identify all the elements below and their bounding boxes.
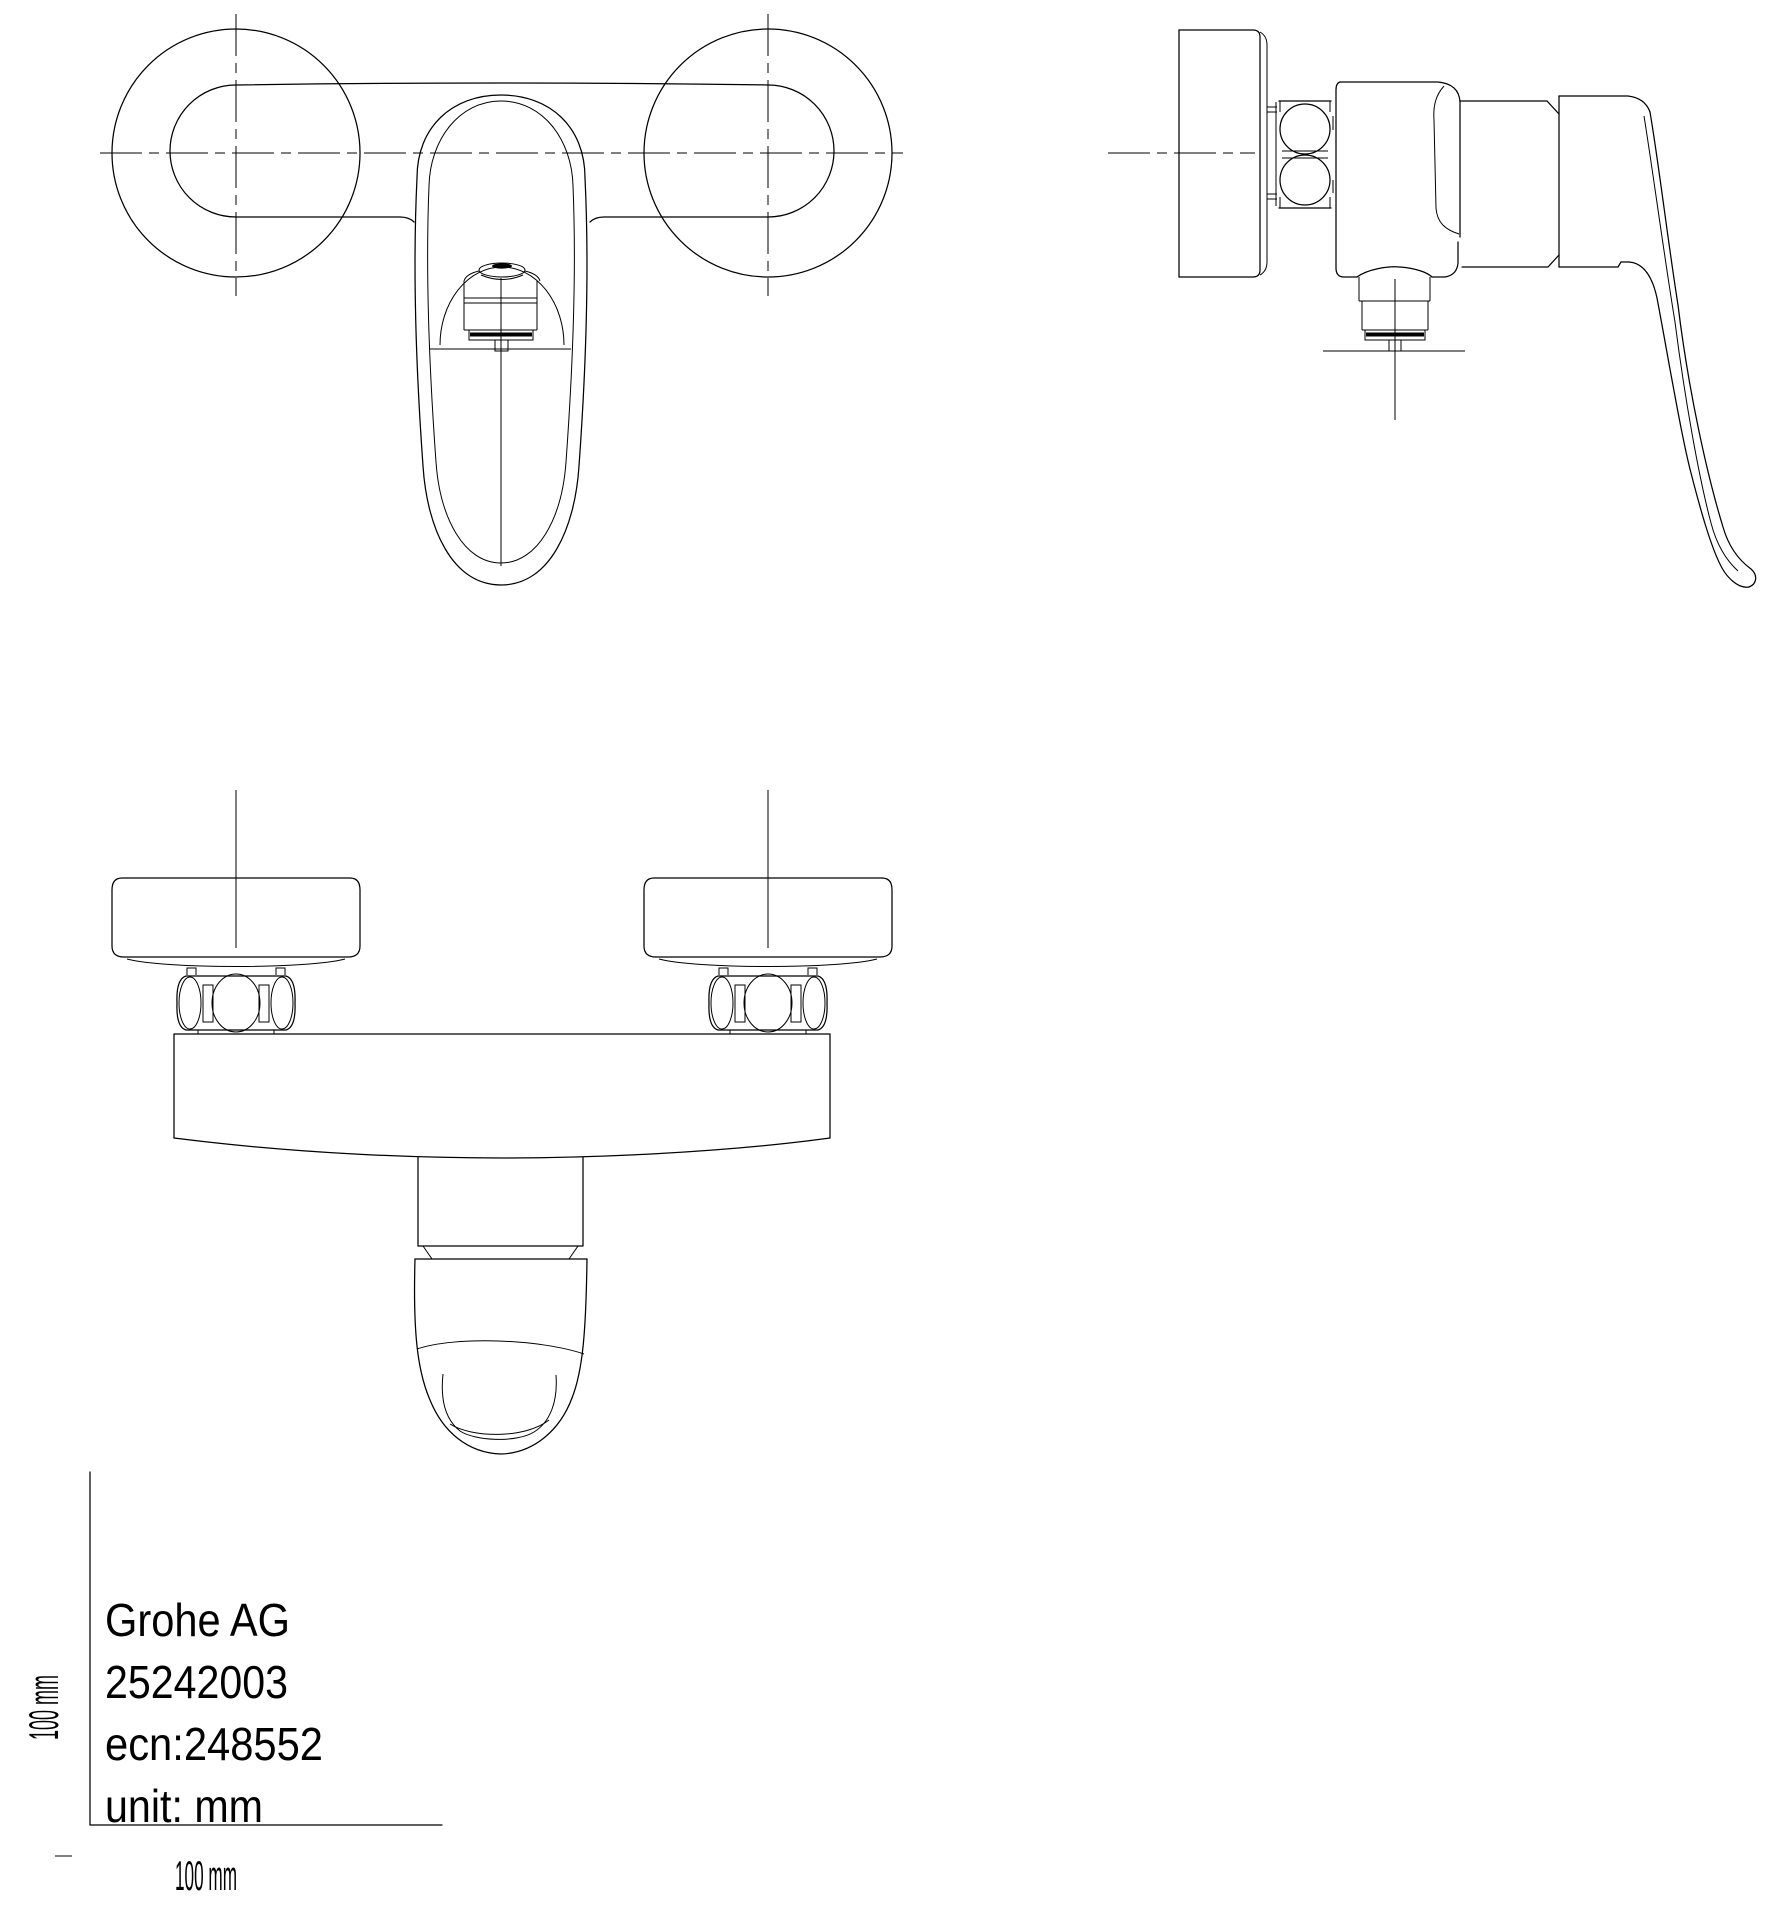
scale-x-label: 100 mm (175, 1852, 237, 1899)
union-nut-side (1276, 101, 1333, 208)
outlet-crosshair-front (430, 278, 571, 566)
unit-label: unit: mm (105, 1780, 263, 1832)
outlet-detail-front (430, 263, 571, 566)
front-view (100, 14, 903, 585)
outlet-side (1323, 277, 1465, 420)
outlet-crosshair-side (1323, 279, 1465, 420)
title-block: Grohe AG 25242003 ecn:248552 unit: mm (105, 1594, 323, 1832)
mixer-body-bottom (174, 1034, 830, 1158)
product-number-label: 25242003 (105, 1656, 288, 1708)
bottom-view (112, 790, 892, 1454)
lever-handle-side (1559, 96, 1756, 587)
union-nut-bottom-right (709, 968, 827, 1034)
shower-outlet-bottom (415, 1157, 587, 1454)
ecn-label: ecn:248552 (105, 1718, 323, 1770)
drawing-sheet: Grohe AG 25242003 ecn:248552 unit: mm 10… (0, 0, 1768, 1920)
side-view (1108, 30, 1756, 587)
cartridge-housing-side (1460, 101, 1559, 267)
manufacturer-label: Grohe AG (105, 1594, 290, 1646)
scale-y-label: 100 mm (20, 1675, 67, 1740)
valve-body-side (1336, 82, 1460, 277)
technical-drawing-svg: Grohe AG 25242003 ecn:248552 unit: mm 10… (0, 0, 1768, 1920)
union-nut-bottom-left (177, 968, 295, 1034)
